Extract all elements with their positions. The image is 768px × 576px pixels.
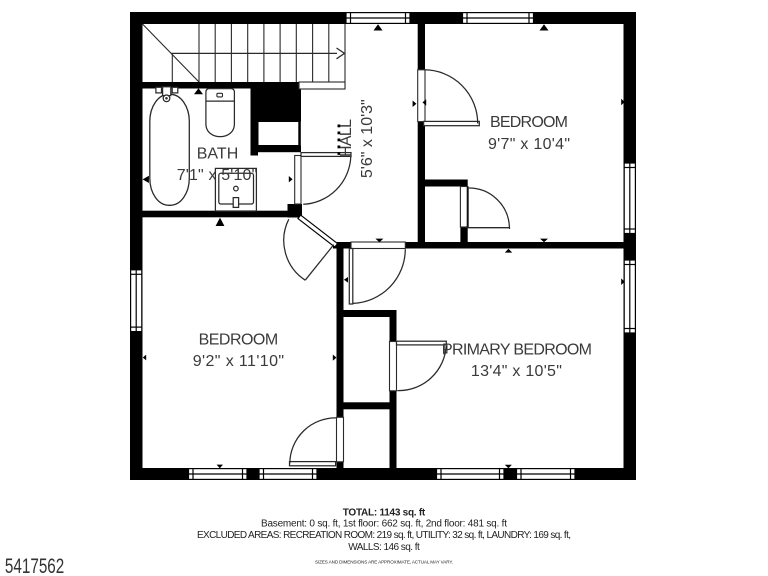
svg-text:BEDROOM: BEDROOM bbox=[490, 114, 568, 131]
svg-text:PRIMARY BEDROOM: PRIMARY BEDROOM bbox=[442, 342, 592, 359]
svg-text:EXCLUDED AREAS: RECREATION ROO: EXCLUDED AREAS: RECREATION ROOM: 219 sq.… bbox=[197, 530, 571, 541]
svg-text:TOTAL: 1143 sq. ft: TOTAL: 1143 sq. ft bbox=[343, 507, 426, 518]
svg-text:9'7" x 10'4": 9'7" x 10'4" bbox=[488, 136, 570, 153]
svg-text:9'2" x 11'10": 9'2" x 11'10" bbox=[193, 353, 284, 370]
svg-text:HALL: HALL bbox=[338, 119, 355, 157]
svg-text:BATH: BATH bbox=[197, 145, 239, 162]
svg-text:13'4" x 10'5": 13'4" x 10'5" bbox=[471, 363, 562, 380]
svg-text:SIZES AND DIMENSIONS ARE APPRO: SIZES AND DIMENSIONS ARE APPROXIMATE, AC… bbox=[315, 560, 453, 565]
svg-text:BEDROOM: BEDROOM bbox=[199, 331, 279, 348]
svg-text:7'1" x 5'10": 7'1" x 5'10" bbox=[177, 167, 258, 184]
svg-text:5'6" x 10'3": 5'6" x 10'3" bbox=[359, 99, 376, 178]
svg-text:5417562: 5417562 bbox=[5, 553, 64, 576]
svg-text:WALLS: 146 sq. ft: WALLS: 146 sq. ft bbox=[348, 542, 420, 553]
svg-text:Basement: 0 sq. ft, 1st floor:: Basement: 0 sq. ft, 1st floor: 662 sq. f… bbox=[261, 518, 507, 529]
